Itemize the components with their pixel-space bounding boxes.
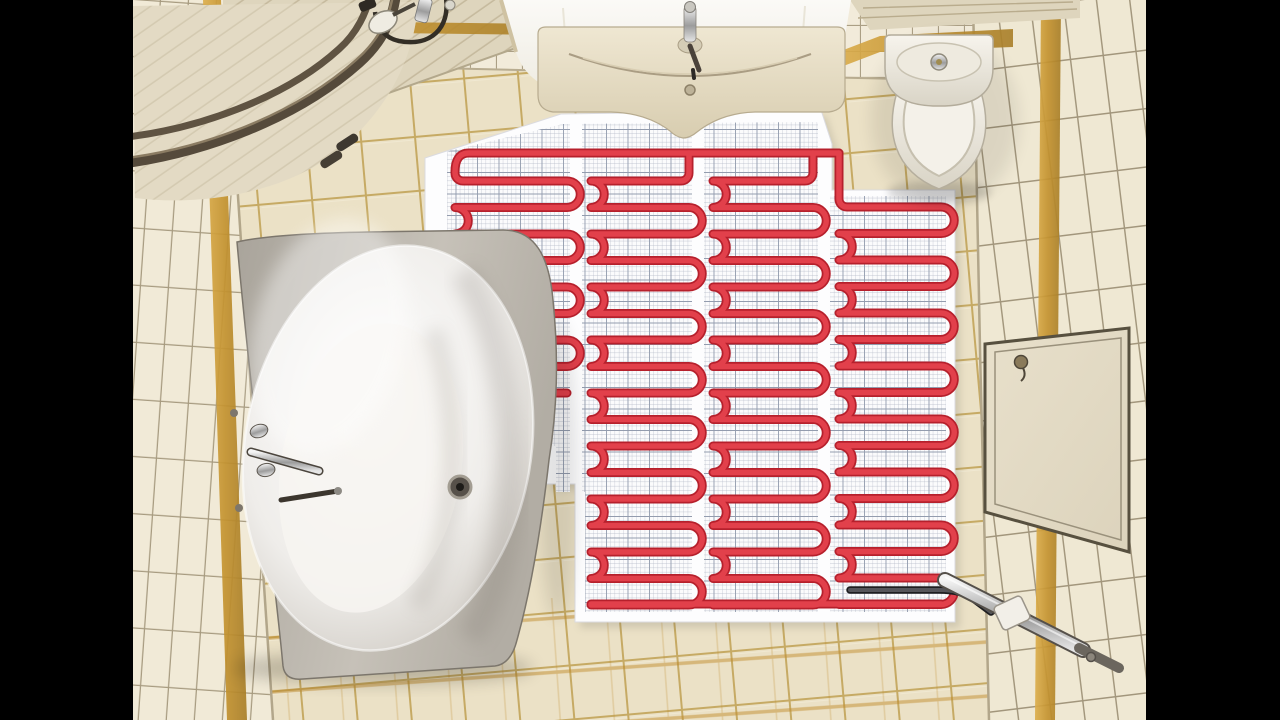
tub-lever-knob — [334, 487, 342, 495]
bathroom-photo — [133, 0, 1146, 720]
vanity-faucet-tip — [693, 70, 694, 78]
conduit-screw — [1087, 653, 1096, 662]
bathroom-canvas — [133, 0, 1146, 720]
basin-overflow — [685, 85, 695, 95]
letterbox-right — [1146, 0, 1280, 720]
access-panel-face — [985, 328, 1129, 552]
video-frame — [0, 0, 1280, 720]
tub-fitting-screw-1 — [230, 409, 238, 417]
access-panel-knob — [1015, 356, 1028, 369]
access-panel — [985, 328, 1129, 552]
letterbox-left — [0, 0, 133, 720]
vanity-faucet-cap — [685, 2, 696, 13]
toilet — [871, 34, 1019, 206]
shower-ceiling-mount — [445, 0, 455, 10]
flush-button-center — [936, 59, 942, 65]
tub-fitting-screw-2 — [235, 504, 243, 512]
bathtub-drain-hole — [456, 483, 464, 491]
